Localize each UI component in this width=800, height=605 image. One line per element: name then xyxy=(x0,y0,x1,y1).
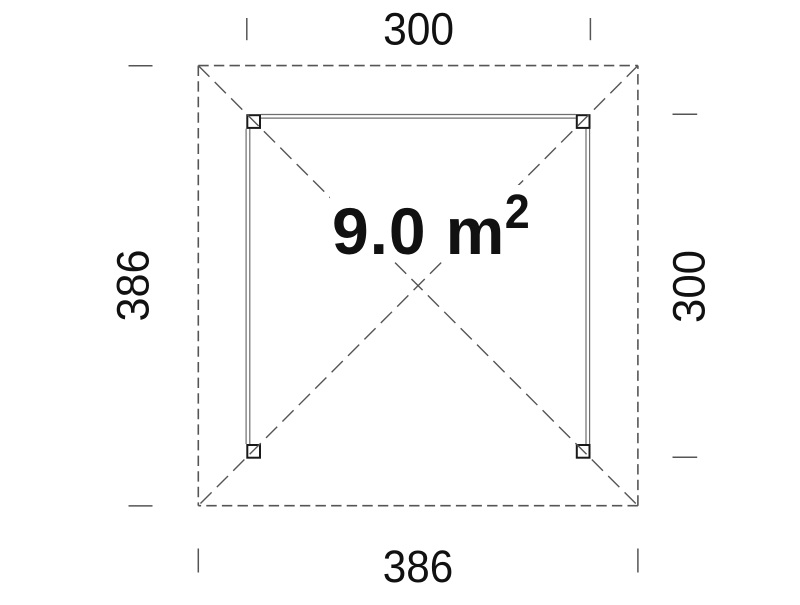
svg-text:9.0 m: 9.0 m xyxy=(332,194,505,268)
svg-text:386: 386 xyxy=(383,541,454,592)
svg-text:300: 300 xyxy=(383,3,454,54)
svg-text:386: 386 xyxy=(108,250,159,322)
svg-text:2: 2 xyxy=(505,186,530,239)
svg-text:300: 300 xyxy=(664,250,715,323)
